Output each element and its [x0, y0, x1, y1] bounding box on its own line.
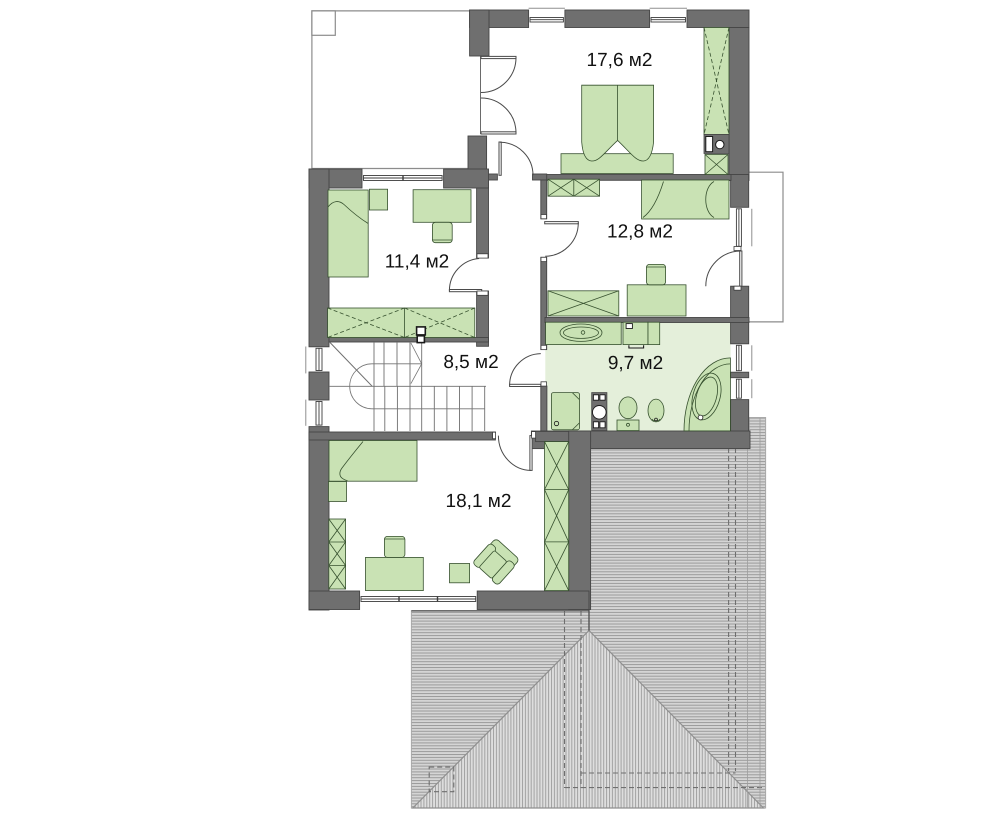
svg-text:18,1 м2: 18,1 м2 [446, 491, 512, 512]
svg-text:11,4 м2: 11,4 м2 [385, 252, 449, 273]
svg-text:8,5 м2: 8,5 м2 [443, 352, 498, 373]
svg-text:9,7 м2: 9,7 м2 [608, 353, 663, 374]
svg-text:17,6 м2: 17,6 м2 [587, 50, 653, 71]
svg-text:12,8 м2: 12,8 м2 [607, 222, 673, 243]
